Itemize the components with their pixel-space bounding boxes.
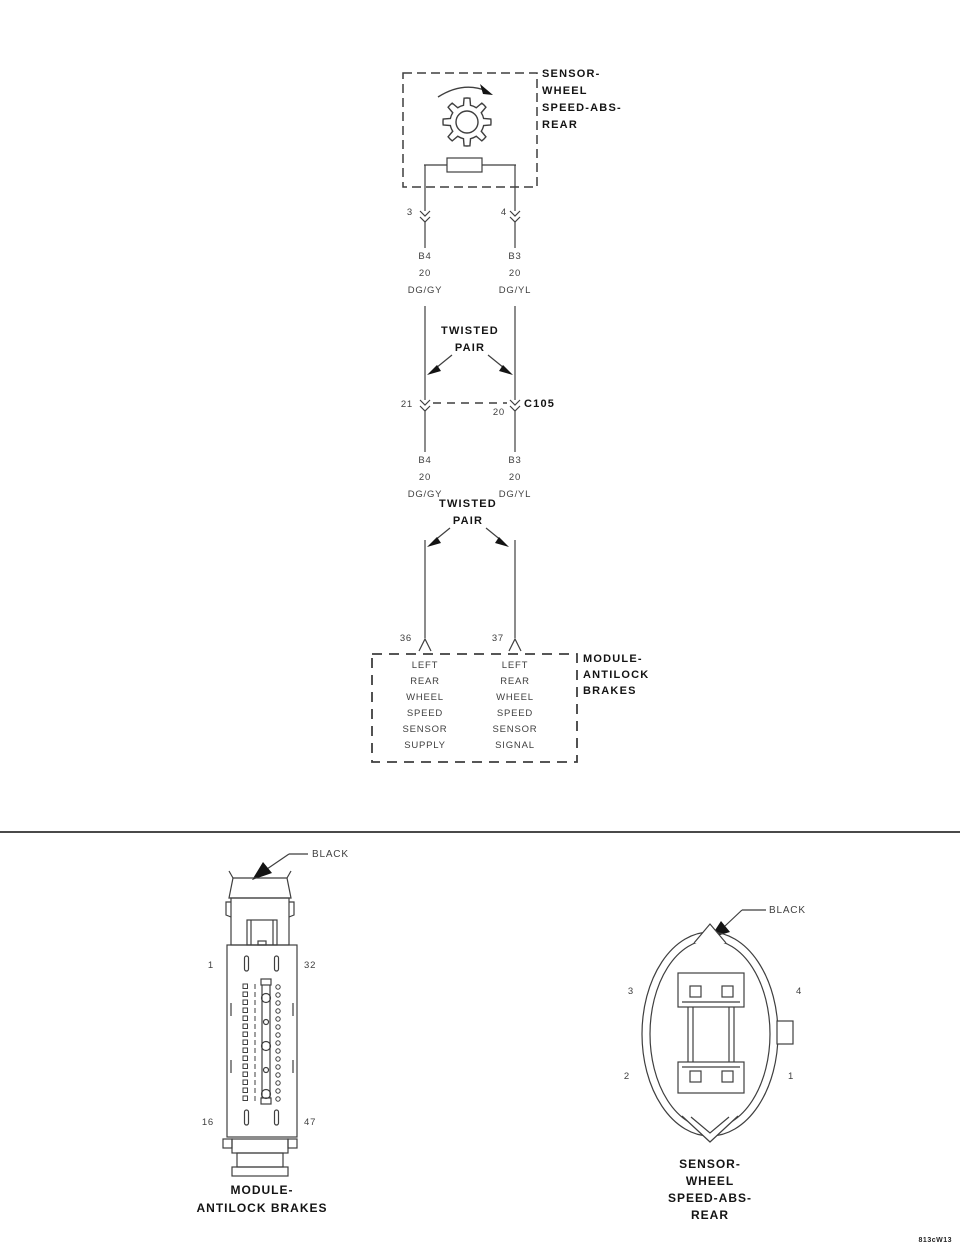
sensor-pin-right-number: 4 — [477, 204, 507, 221]
sensor-box-label: SENSOR- WHEEL SPEED-ABS- REAR — [542, 66, 622, 134]
sensor-connector-face — [642, 910, 793, 1142]
twisted-pair-arrows-lower — [427, 528, 509, 547]
sensor-connector-caption: SENSOR- WHEEL SPEED-ABS- REAR — [668, 1156, 752, 1224]
module-circuit-left: LEFT REAR WHEEL SPEED SENSOR SUPPLY — [403, 658, 448, 754]
c105-pin-right-number: 20 — [475, 404, 505, 421]
wire-label-lower-right: B3 20 DG/YL — [499, 452, 532, 503]
module-connector-pin-1: 1 — [190, 957, 214, 974]
sensor-connector-pin-1: 1 — [788, 1068, 794, 1085]
module-connector-pin-32: 32 — [304, 957, 316, 974]
module-box-label: MODULE- ANTILOCK BRAKES — [583, 651, 649, 699]
rotation-arrow-icon — [438, 84, 493, 97]
gear-icon — [443, 98, 491, 146]
module-connector-face — [223, 854, 308, 1176]
twisted-pair-upper-label: TWISTED PAIR — [441, 323, 499, 357]
schematic-graphics — [0, 0, 960, 1257]
sensor-pin-left-number: 3 — [385, 204, 413, 221]
twisted-pair-arrows-upper — [427, 355, 513, 375]
sensor-connector-color-label: BLACK — [769, 902, 806, 919]
module-pin-right-number: 37 — [474, 630, 504, 647]
module-connector-pin-47: 47 — [304, 1114, 316, 1131]
wire-left — [419, 165, 431, 651]
sensor-coil — [424, 158, 516, 172]
module-pin-left-number: 36 — [384, 630, 412, 647]
module-circuit-right: LEFT REAR WHEEL SPEED SENSOR SIGNAL — [493, 658, 538, 754]
module-connector-color-label: BLACK — [312, 846, 349, 863]
section-divider — [0, 831, 960, 833]
wire-label-upper-left: B4 20 DG/GY — [408, 248, 443, 299]
module-connector-pin-16: 16 — [186, 1114, 214, 1131]
figure-code: 813cW13 — [895, 1236, 952, 1246]
wiring-diagram-page: SENSOR- WHEEL SPEED-ABS- REAR 3 4 B4 20 … — [0, 0, 960, 1257]
twisted-pair-lower-label: TWISTED PAIR — [439, 496, 497, 530]
sensor-connector-pin-2: 2 — [602, 1068, 630, 1085]
wire-label-lower-left: B4 20 DG/GY — [408, 452, 443, 503]
c105-connector-name: C105 — [524, 396, 555, 413]
wire-label-upper-right: B3 20 DG/YL — [499, 248, 532, 299]
c105-pin-left-number: 21 — [385, 396, 413, 413]
sensor-connector-pin-4: 4 — [796, 983, 802, 1000]
wire-right — [509, 165, 521, 651]
sensor-connector-pin-3: 3 — [606, 983, 634, 1000]
module-connector-caption: MODULE- ANTILOCK BRAKES — [197, 1181, 328, 1217]
